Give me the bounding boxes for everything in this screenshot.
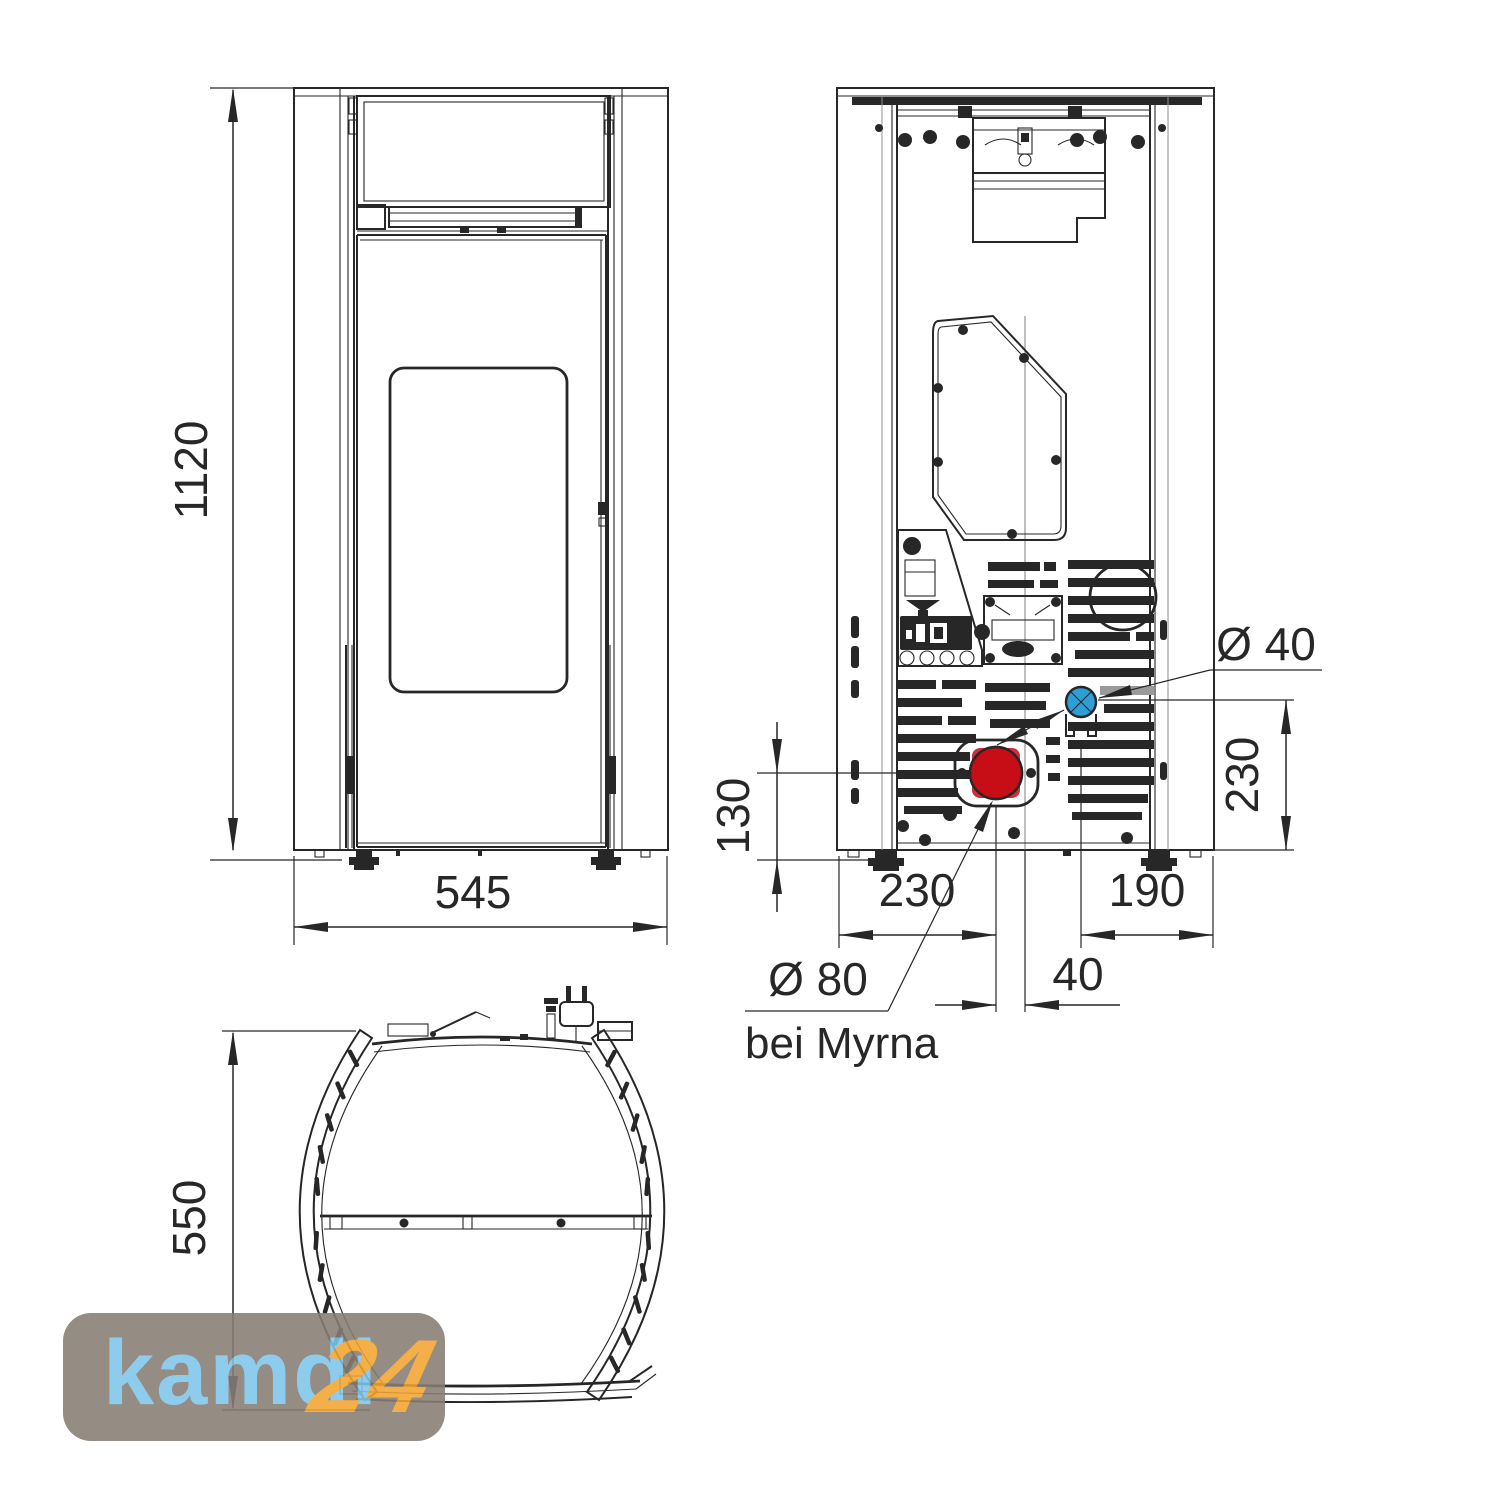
intake-diameter-label: Ø 40	[1216, 618, 1316, 670]
door-latch	[598, 502, 606, 515]
dim-depth-label: 550	[163, 1180, 215, 1257]
dim-flue-from-left-label: 230	[879, 864, 956, 916]
top-cap	[852, 97, 1202, 105]
dim-height-label: 1120	[165, 421, 217, 520]
dim-intake-height-label: 230	[1216, 737, 1268, 814]
dim-flue-height-label: 130	[707, 778, 759, 855]
watermark-logo: kamdi 24	[63, 1313, 445, 1441]
technical-drawing: 1120 545	[0, 0, 1500, 1500]
dim-flue-from-center-label: 40	[1052, 948, 1103, 1000]
dim-width-label: 545	[435, 866, 512, 918]
flue-note-label: bei Myrna	[745, 1019, 939, 1068]
canvas-background	[0, 0, 1500, 1500]
dim-intake-from-right-label: 190	[1109, 864, 1186, 916]
flue-diameter-label: Ø 80	[768, 953, 868, 1005]
